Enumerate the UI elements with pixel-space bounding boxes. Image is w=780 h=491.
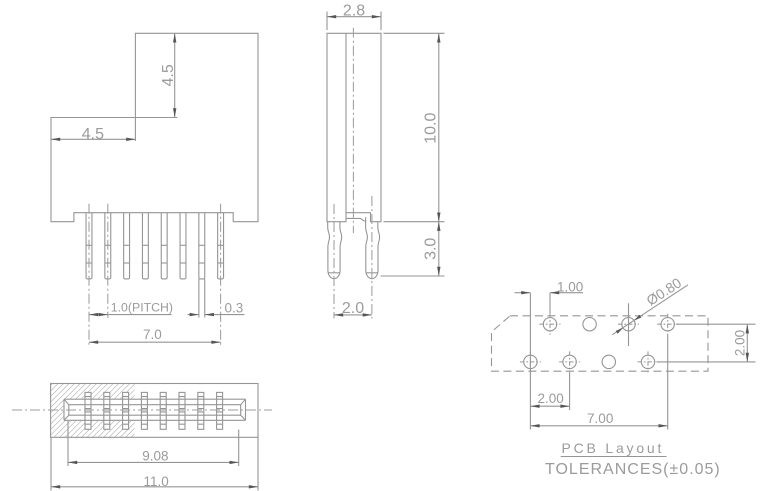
svg-text:7.0: 7.0 xyxy=(143,327,162,342)
svg-text:4.5: 4.5 xyxy=(82,126,104,143)
svg-text:11.0: 11.0 xyxy=(144,474,169,489)
svg-text:0.3: 0.3 xyxy=(225,301,244,316)
svg-text:2.0: 2.0 xyxy=(342,300,364,317)
svg-text:3.0: 3.0 xyxy=(422,238,439,260)
svg-text:9.08: 9.08 xyxy=(142,449,168,464)
svg-text:2.00: 2.00 xyxy=(733,330,748,356)
svg-text:7.00: 7.00 xyxy=(587,411,613,426)
svg-text:4.5: 4.5 xyxy=(160,64,177,86)
svg-text:2.8: 2.8 xyxy=(343,2,365,19)
svg-text:1.0(PITCH): 1.0(PITCH) xyxy=(111,301,173,315)
svg-text:2.00: 2.00 xyxy=(537,391,563,406)
svg-text:PCB Layout: PCB Layout xyxy=(562,440,665,456)
svg-text:10.0: 10.0 xyxy=(422,113,439,144)
svg-text:TOLERANCES(±0.05): TOLERANCES(±0.05) xyxy=(545,461,721,478)
svg-text:1.00: 1.00 xyxy=(557,279,583,294)
